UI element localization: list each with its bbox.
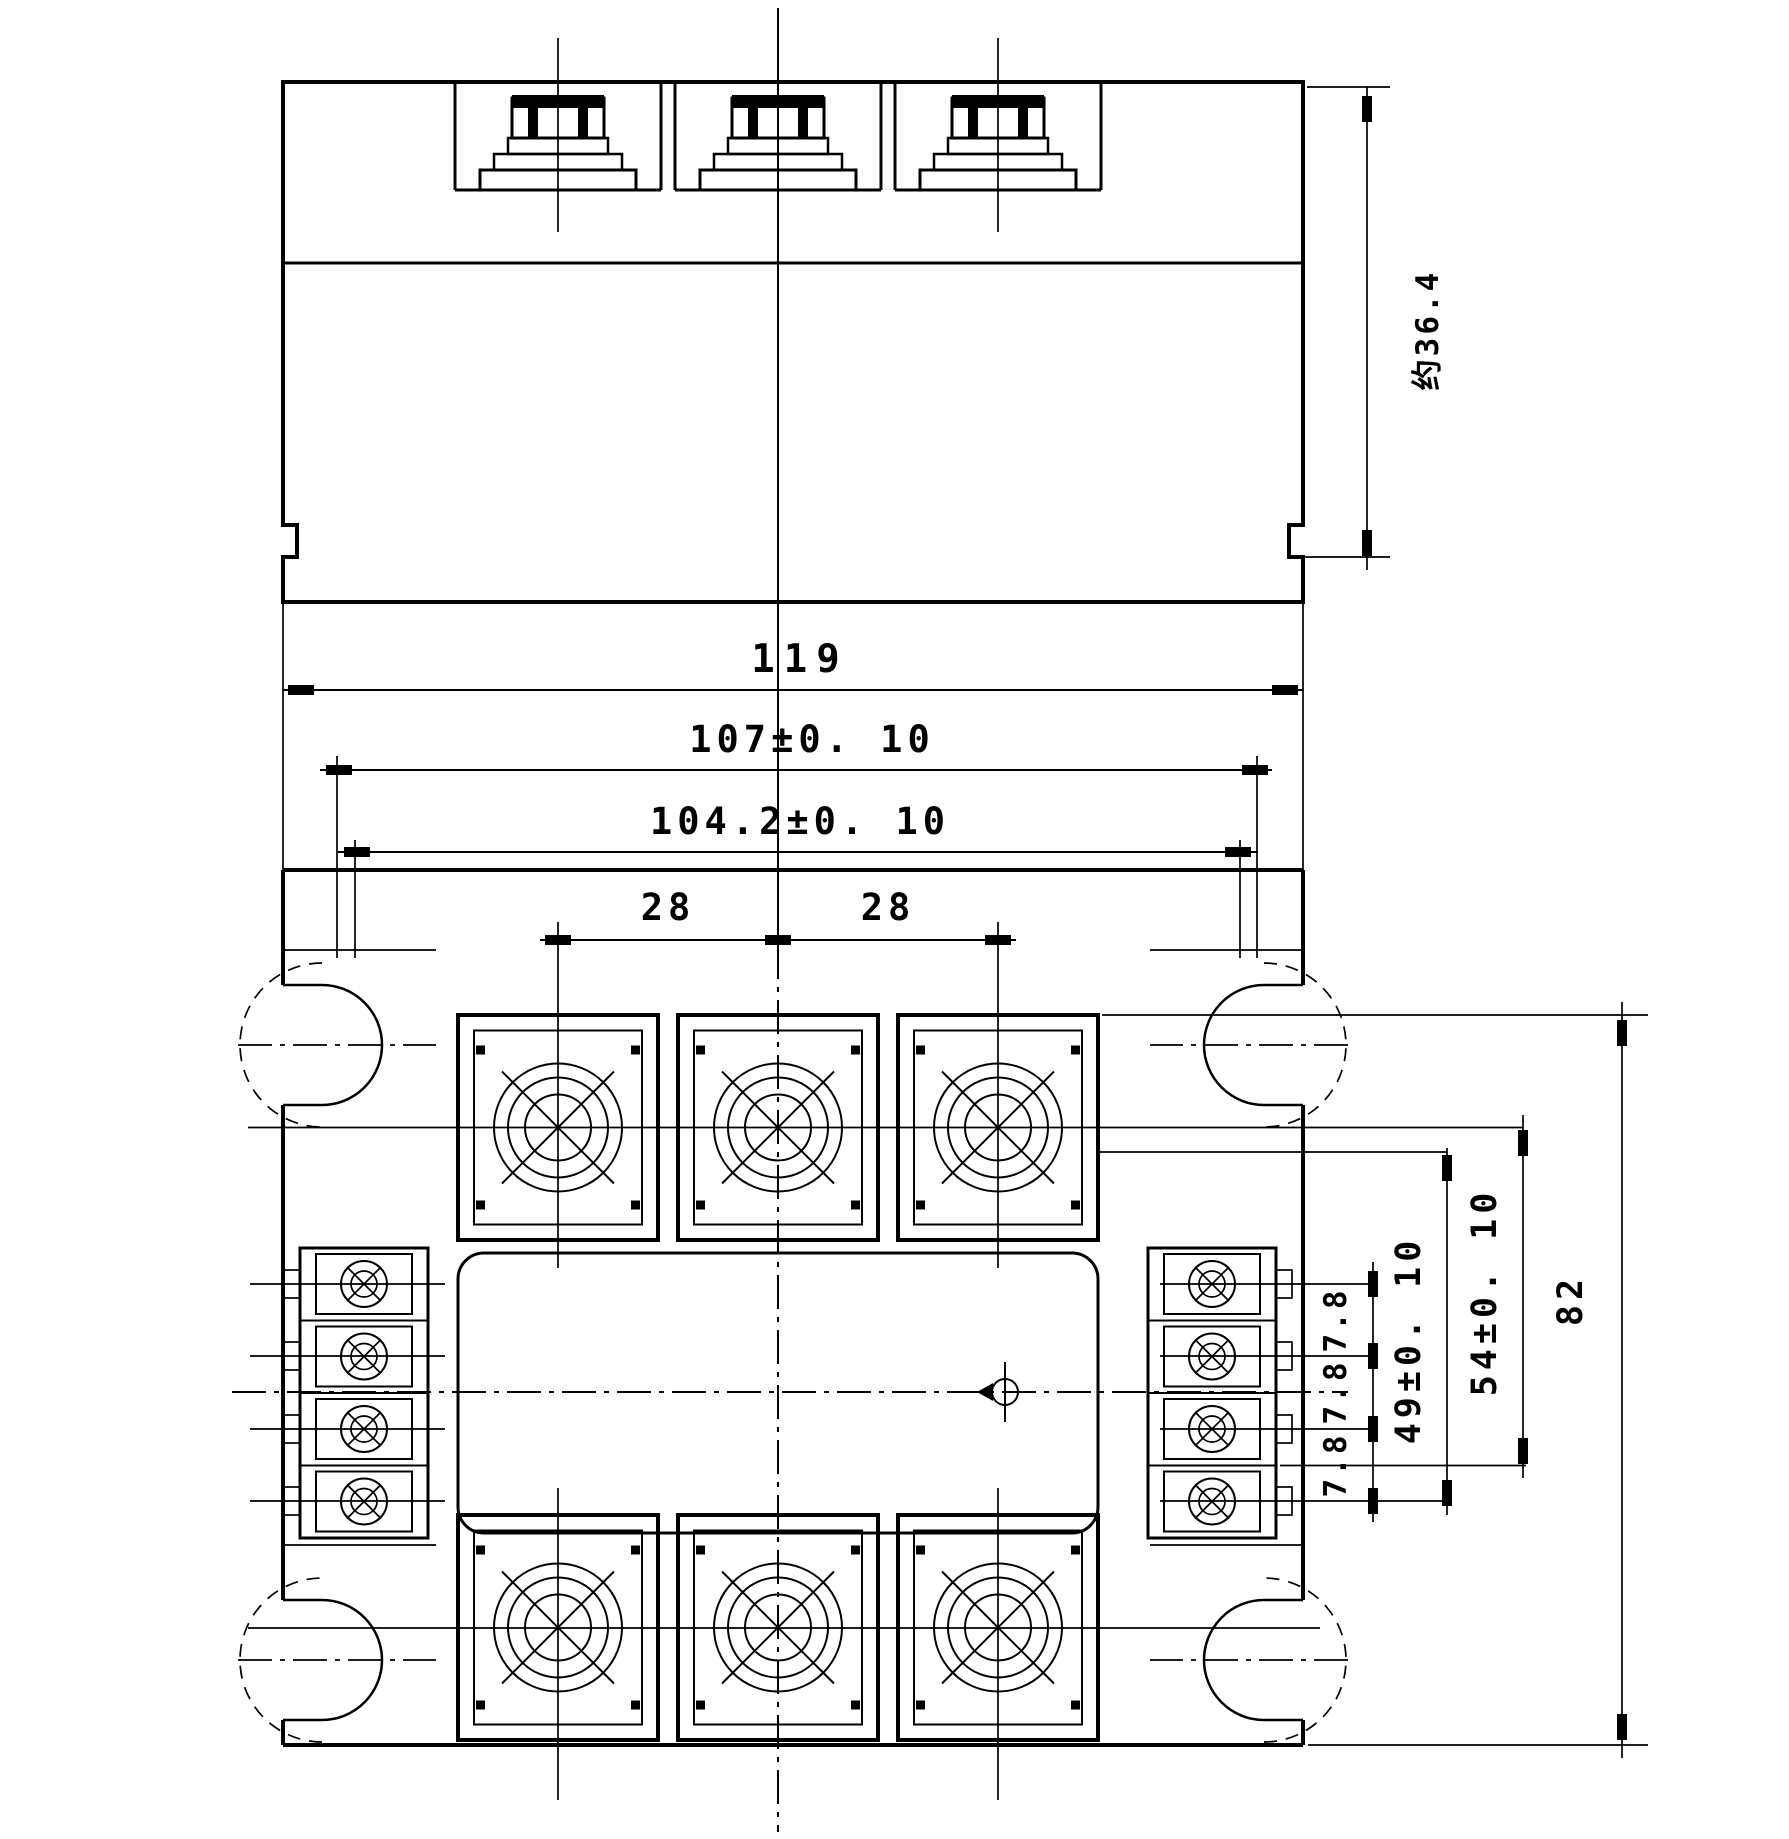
- dim-height-label: 约36.4: [1410, 270, 1446, 391]
- dim-control-pitch: 7.8 7.8 7.8: [1318, 1262, 1378, 1522]
- technical-drawing: 约36.4 119 107±0. 10 104.2±0. 10 28 28: [0, 0, 1789, 1839]
- dim-82-label: 82: [1551, 1274, 1591, 1326]
- front-terminal-3: [895, 38, 1101, 232]
- dim-depth: 82: [1102, 1002, 1648, 1758]
- control-block-right: [1148, 1248, 1292, 1538]
- front-terminal-1: [455, 38, 661, 232]
- dim-54-label: 54±0. 10: [1465, 1188, 1505, 1397]
- dim-119-label: 119: [751, 637, 848, 682]
- dim-overall-width: 119: [283, 637, 1303, 695]
- mount-notch-bottom-right: [1150, 1578, 1348, 1742]
- dim-49-label: 49±0. 10: [1389, 1236, 1429, 1445]
- dim-28-left-label: 28: [641, 886, 696, 929]
- mount-notch-top-left: [238, 963, 436, 1127]
- control-block-left: [284, 1248, 428, 1538]
- dim-49: 49±0. 10: [1389, 1148, 1452, 1515]
- dim-104-label: 104.2±0. 10: [650, 800, 950, 843]
- mount-notch-top-right: [1150, 963, 1348, 1127]
- dim-inner-width: 104.2±0. 10: [338, 800, 1258, 857]
- dim-78-1-label: 7.8: [1318, 1288, 1354, 1353]
- mount-notch-bottom-left: [238, 1578, 436, 1742]
- front-view: [283, 38, 1303, 602]
- top-view: [238, 870, 1348, 1745]
- dim-28-right-label: 28: [861, 886, 916, 929]
- dim-hole-spacing: 107±0. 10: [320, 718, 1272, 775]
- dim-height: 约36.4: [1291, 87, 1446, 570]
- dim-107-label: 107±0. 10: [689, 718, 934, 761]
- dim-78-2-label: 7.8: [1318, 1360, 1354, 1425]
- drawing-canvas: 约36.4 119 107±0. 10 104.2±0. 10 28 28: [0, 0, 1789, 1839]
